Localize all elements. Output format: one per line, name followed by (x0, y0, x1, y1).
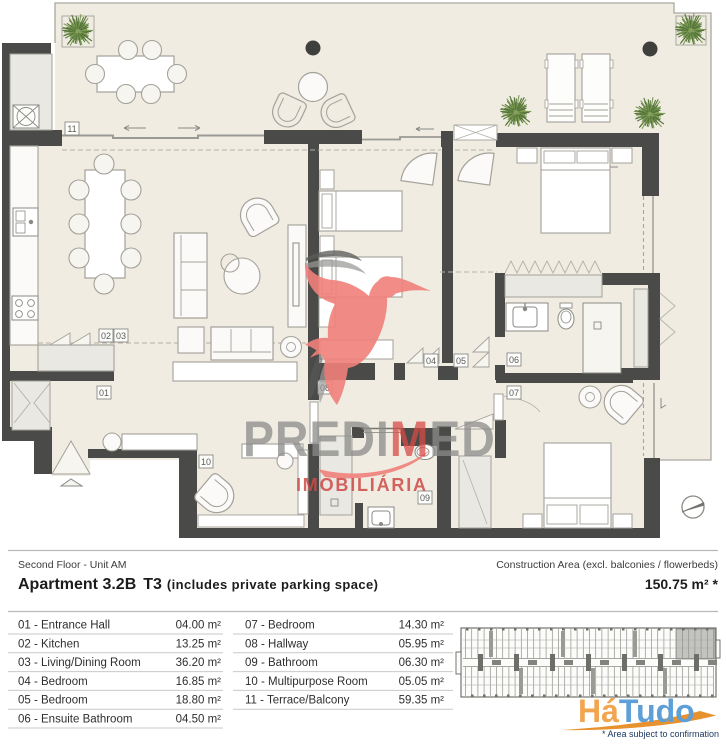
svg-text:* Area subject to confirmation: * Area subject to confirmation (602, 729, 719, 739)
svg-text:06.30 m²: 06.30 m² (399, 657, 445, 669)
svg-text:10: 10 (201, 457, 211, 467)
svg-text:08 - Hallway: 08 - Hallway (245, 638, 309, 650)
svg-text:04.50 m²: 04.50 m² (176, 714, 222, 726)
svg-text:04.00 m²: 04.00 m² (176, 620, 222, 632)
svg-text:05.05 m²: 05.05 m² (399, 676, 445, 688)
svg-text:03: 03 (116, 331, 126, 341)
svg-text:Second Floor - Unit AM: Second Floor - Unit AM (18, 559, 127, 571)
svg-text:10 - Multipurpose Room: 10 - Multipurpose Room (245, 676, 368, 688)
svg-text:04 - Bedroom: 04 - Bedroom (18, 676, 88, 688)
svg-text:07: 07 (509, 388, 519, 398)
svg-text:Apartment 3.2BT3(includes priv: Apartment 3.2BT3(includes private parkin… (18, 576, 378, 593)
svg-text:01: 01 (99, 388, 109, 398)
svg-text:04: 04 (426, 356, 436, 366)
svg-text:09 - Bathroom: 09 - Bathroom (245, 657, 318, 669)
svg-text:01 - Entrance Hall: 01 - Entrance Hall (18, 620, 110, 632)
svg-text:03 - Living/Dining Room: 03 - Living/Dining Room (18, 657, 141, 669)
svg-text:36.20 m²: 36.20 m² (176, 657, 222, 669)
svg-text:05 - Bedroom: 05 - Bedroom (18, 695, 88, 707)
svg-text:59.35 m²: 59.35 m² (399, 695, 445, 707)
svg-text:05: 05 (456, 356, 466, 366)
svg-text:150.75 m² *: 150.75 m² * (645, 576, 719, 592)
svg-text:Construction Area (excl. balco: Construction Area (excl. balconies / flo… (496, 559, 718, 571)
svg-text:02: 02 (101, 331, 111, 341)
svg-text:13.25 m²: 13.25 m² (176, 638, 222, 650)
svg-text:HáTudo: HáTudo (578, 693, 695, 729)
svg-text:02 - Kitchen: 02 - Kitchen (18, 638, 79, 650)
svg-text:PREDIMED: PREDIMED (243, 411, 496, 467)
svg-text:07 - Bedroom: 07 - Bedroom (245, 620, 315, 632)
svg-text:11: 11 (67, 124, 76, 134)
svg-text:14.30 m²: 14.30 m² (399, 620, 445, 632)
svg-text:18.80 m²: 18.80 m² (176, 695, 222, 707)
svg-text:06: 06 (509, 355, 519, 365)
svg-text:05.95 m²: 05.95 m² (399, 638, 445, 650)
svg-text:06 - Ensuite Bathroom: 06 - Ensuite Bathroom (18, 714, 132, 726)
svg-text:IMOBILIÁRIA: IMOBILIÁRIA (296, 474, 428, 495)
svg-text:11 - Terrace/Balcony: 11 - Terrace/Balcony (245, 695, 350, 707)
svg-text:16.85 m²: 16.85 m² (176, 676, 222, 688)
